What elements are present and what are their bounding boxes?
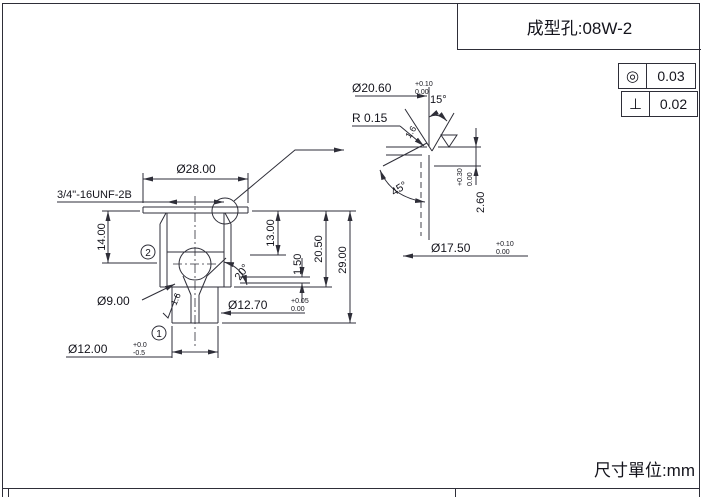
bore-dia-tol-lower: 0.00 xyxy=(291,306,305,313)
dim-flange-dia: Ø28.00 xyxy=(143,162,248,203)
depth-tol-lower: 0.00 xyxy=(467,172,474,186)
detail-view: Ø20.60 +0.10 0.00 15° R 0.15 xyxy=(352,81,528,256)
roughness-stem-label: 1.6 xyxy=(169,291,183,307)
top-dia-tol-lower: 0.00 xyxy=(415,89,429,96)
bore-dia-label: Ø12.70 xyxy=(228,298,268,312)
h20-5-label: 20.50 xyxy=(313,235,325,263)
balloon-2: 2 xyxy=(141,245,155,259)
bottom-dia-label: Ø17.50 xyxy=(431,241,471,255)
chamfer-angle-label: 45° xyxy=(389,179,409,198)
dim-h13: 13.00 xyxy=(250,211,286,255)
h1-5-label: 1.50 xyxy=(292,254,304,275)
bottom-dia-tol-lower: 0.00 xyxy=(496,249,510,256)
detail-outline xyxy=(386,87,454,240)
dim-cone-angle: 20° xyxy=(207,258,252,285)
depth-label: 2.60 xyxy=(475,192,487,213)
dim-h1-5: 1.50 xyxy=(240,254,310,303)
cone-angle-label: 20° xyxy=(233,262,252,283)
dim-top-dia: Ø20.60 +0.10 0.00 xyxy=(352,81,433,96)
dim-ball-dia: Ø9.00 xyxy=(97,284,175,308)
stem-dia-tol-upper: +0.0 xyxy=(133,342,147,349)
dim-h20-5: 20.50 xyxy=(234,211,332,287)
bore-dia-tol-upper: +0.05 xyxy=(291,298,309,305)
bottom-dia-tol-upper: +0.10 xyxy=(496,241,514,248)
dim-thread: 3/4"-16UNF-2B xyxy=(57,189,224,202)
dim-bore-dia: Ø12.70 +0.05 0.00 xyxy=(221,298,309,313)
drawing-canvas: Ø28.00 3/4"-16UNF-2B 14.00 xyxy=(0,0,703,497)
dim-chamfer-angle: 45° xyxy=(380,143,427,202)
ball-dia-label: Ø9.00 xyxy=(97,294,130,308)
seat-angle-label: 15° xyxy=(430,94,447,106)
dim-depth: 2.60 +0.30 0.00 xyxy=(434,128,487,213)
dim-bottom-dia: Ø17.50 +0.10 0.00 xyxy=(403,241,528,256)
main-view: Ø28.00 3/4"-16UNF-2B 14.00 xyxy=(57,150,356,358)
h13-label: 13.00 xyxy=(265,219,277,247)
stem-dia-tol-lower: -0.5 xyxy=(133,350,145,357)
detail-leader-arrow xyxy=(234,150,344,201)
balloon-1-label: 1 xyxy=(156,329,162,340)
radius-label: R 0.15 xyxy=(352,111,388,125)
stem-dia-label: Ø12.00 xyxy=(68,342,108,356)
top-dia-label: Ø20.60 xyxy=(352,81,392,95)
depth-tol-upper: +0.30 xyxy=(457,168,464,186)
top-dia-tol-upper: +0.10 xyxy=(415,81,433,88)
drawing-sheet: 成型孔:08W-2 ◎ 0.03 ⊥ 0.02 尺寸單位:mm xyxy=(0,0,703,497)
dim-seat-angle: 15° xyxy=(429,94,447,121)
thread-label: 3/4"-16UNF-2B xyxy=(57,189,132,201)
flange-dia-label: Ø28.00 xyxy=(176,162,216,176)
balloon-2-label: 2 xyxy=(145,248,151,259)
h14-label: 14.00 xyxy=(96,223,108,251)
balloon-1: 1 xyxy=(152,326,166,340)
dim-stem-dia: Ø12.00 +0.0 -0.5 xyxy=(66,326,218,358)
roughness-stem: 1.6 xyxy=(163,291,183,318)
roughness-chamfer xyxy=(441,135,457,147)
h29-label: 29.00 xyxy=(337,246,349,274)
